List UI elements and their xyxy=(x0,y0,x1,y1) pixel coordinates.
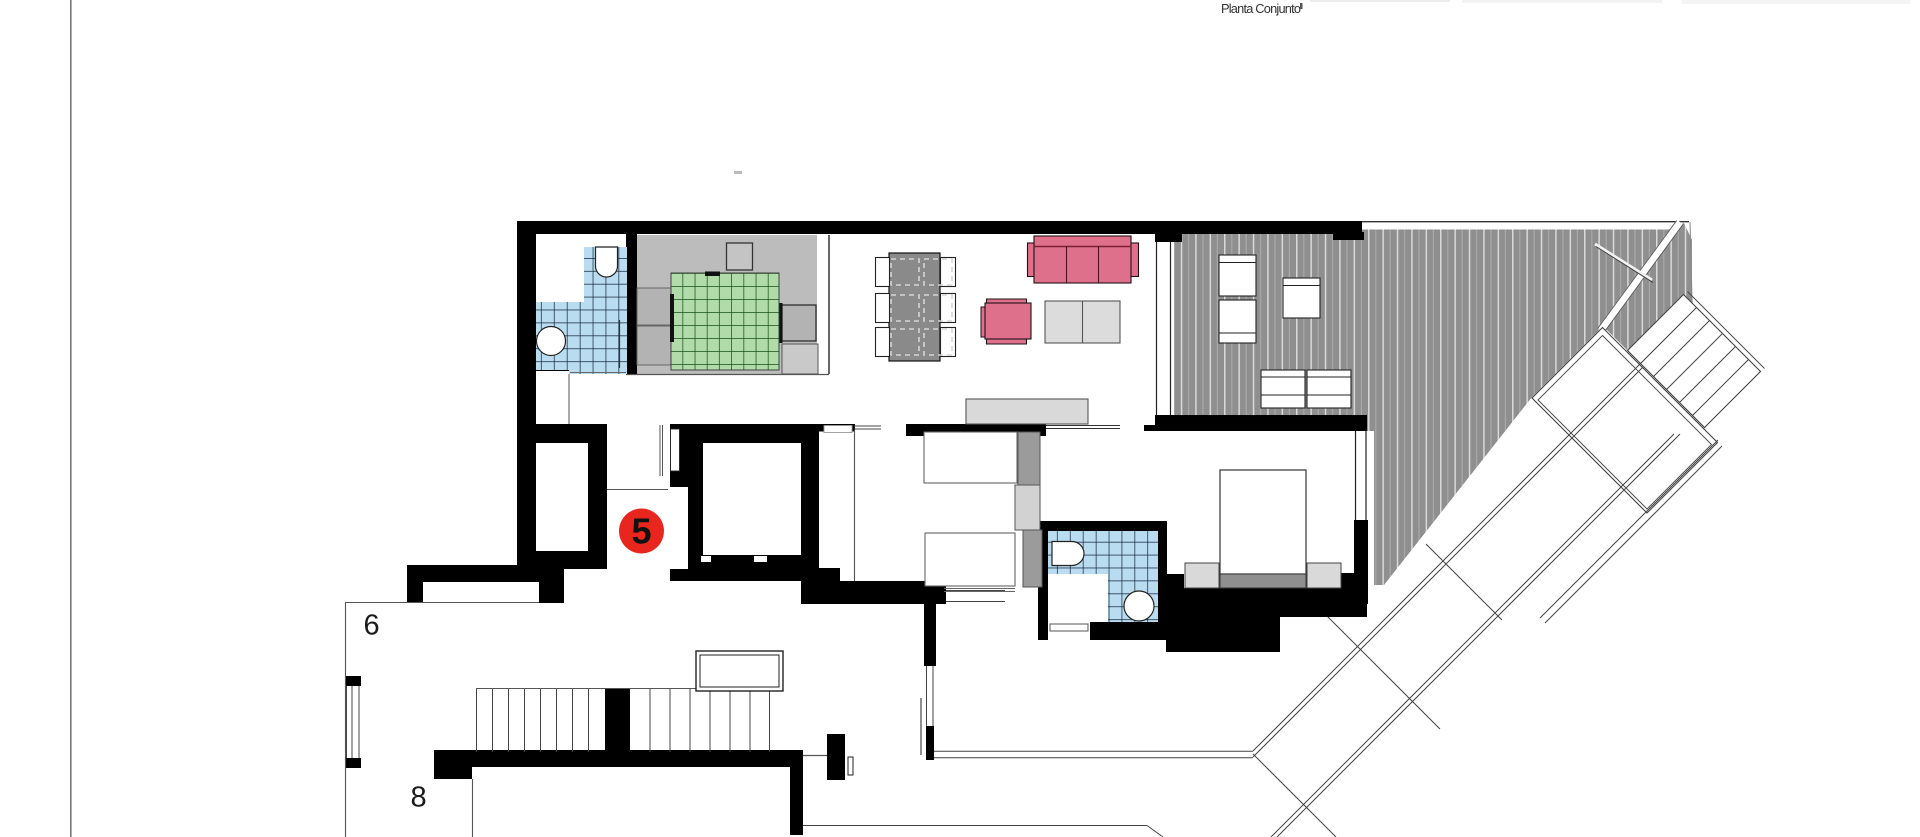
svg-text:Planta Conjunto: Planta Conjunto xyxy=(1221,1,1301,16)
svg-text:6: 6 xyxy=(364,610,380,642)
svg-text:8: 8 xyxy=(411,782,427,814)
svg-text:5: 5 xyxy=(631,511,651,552)
